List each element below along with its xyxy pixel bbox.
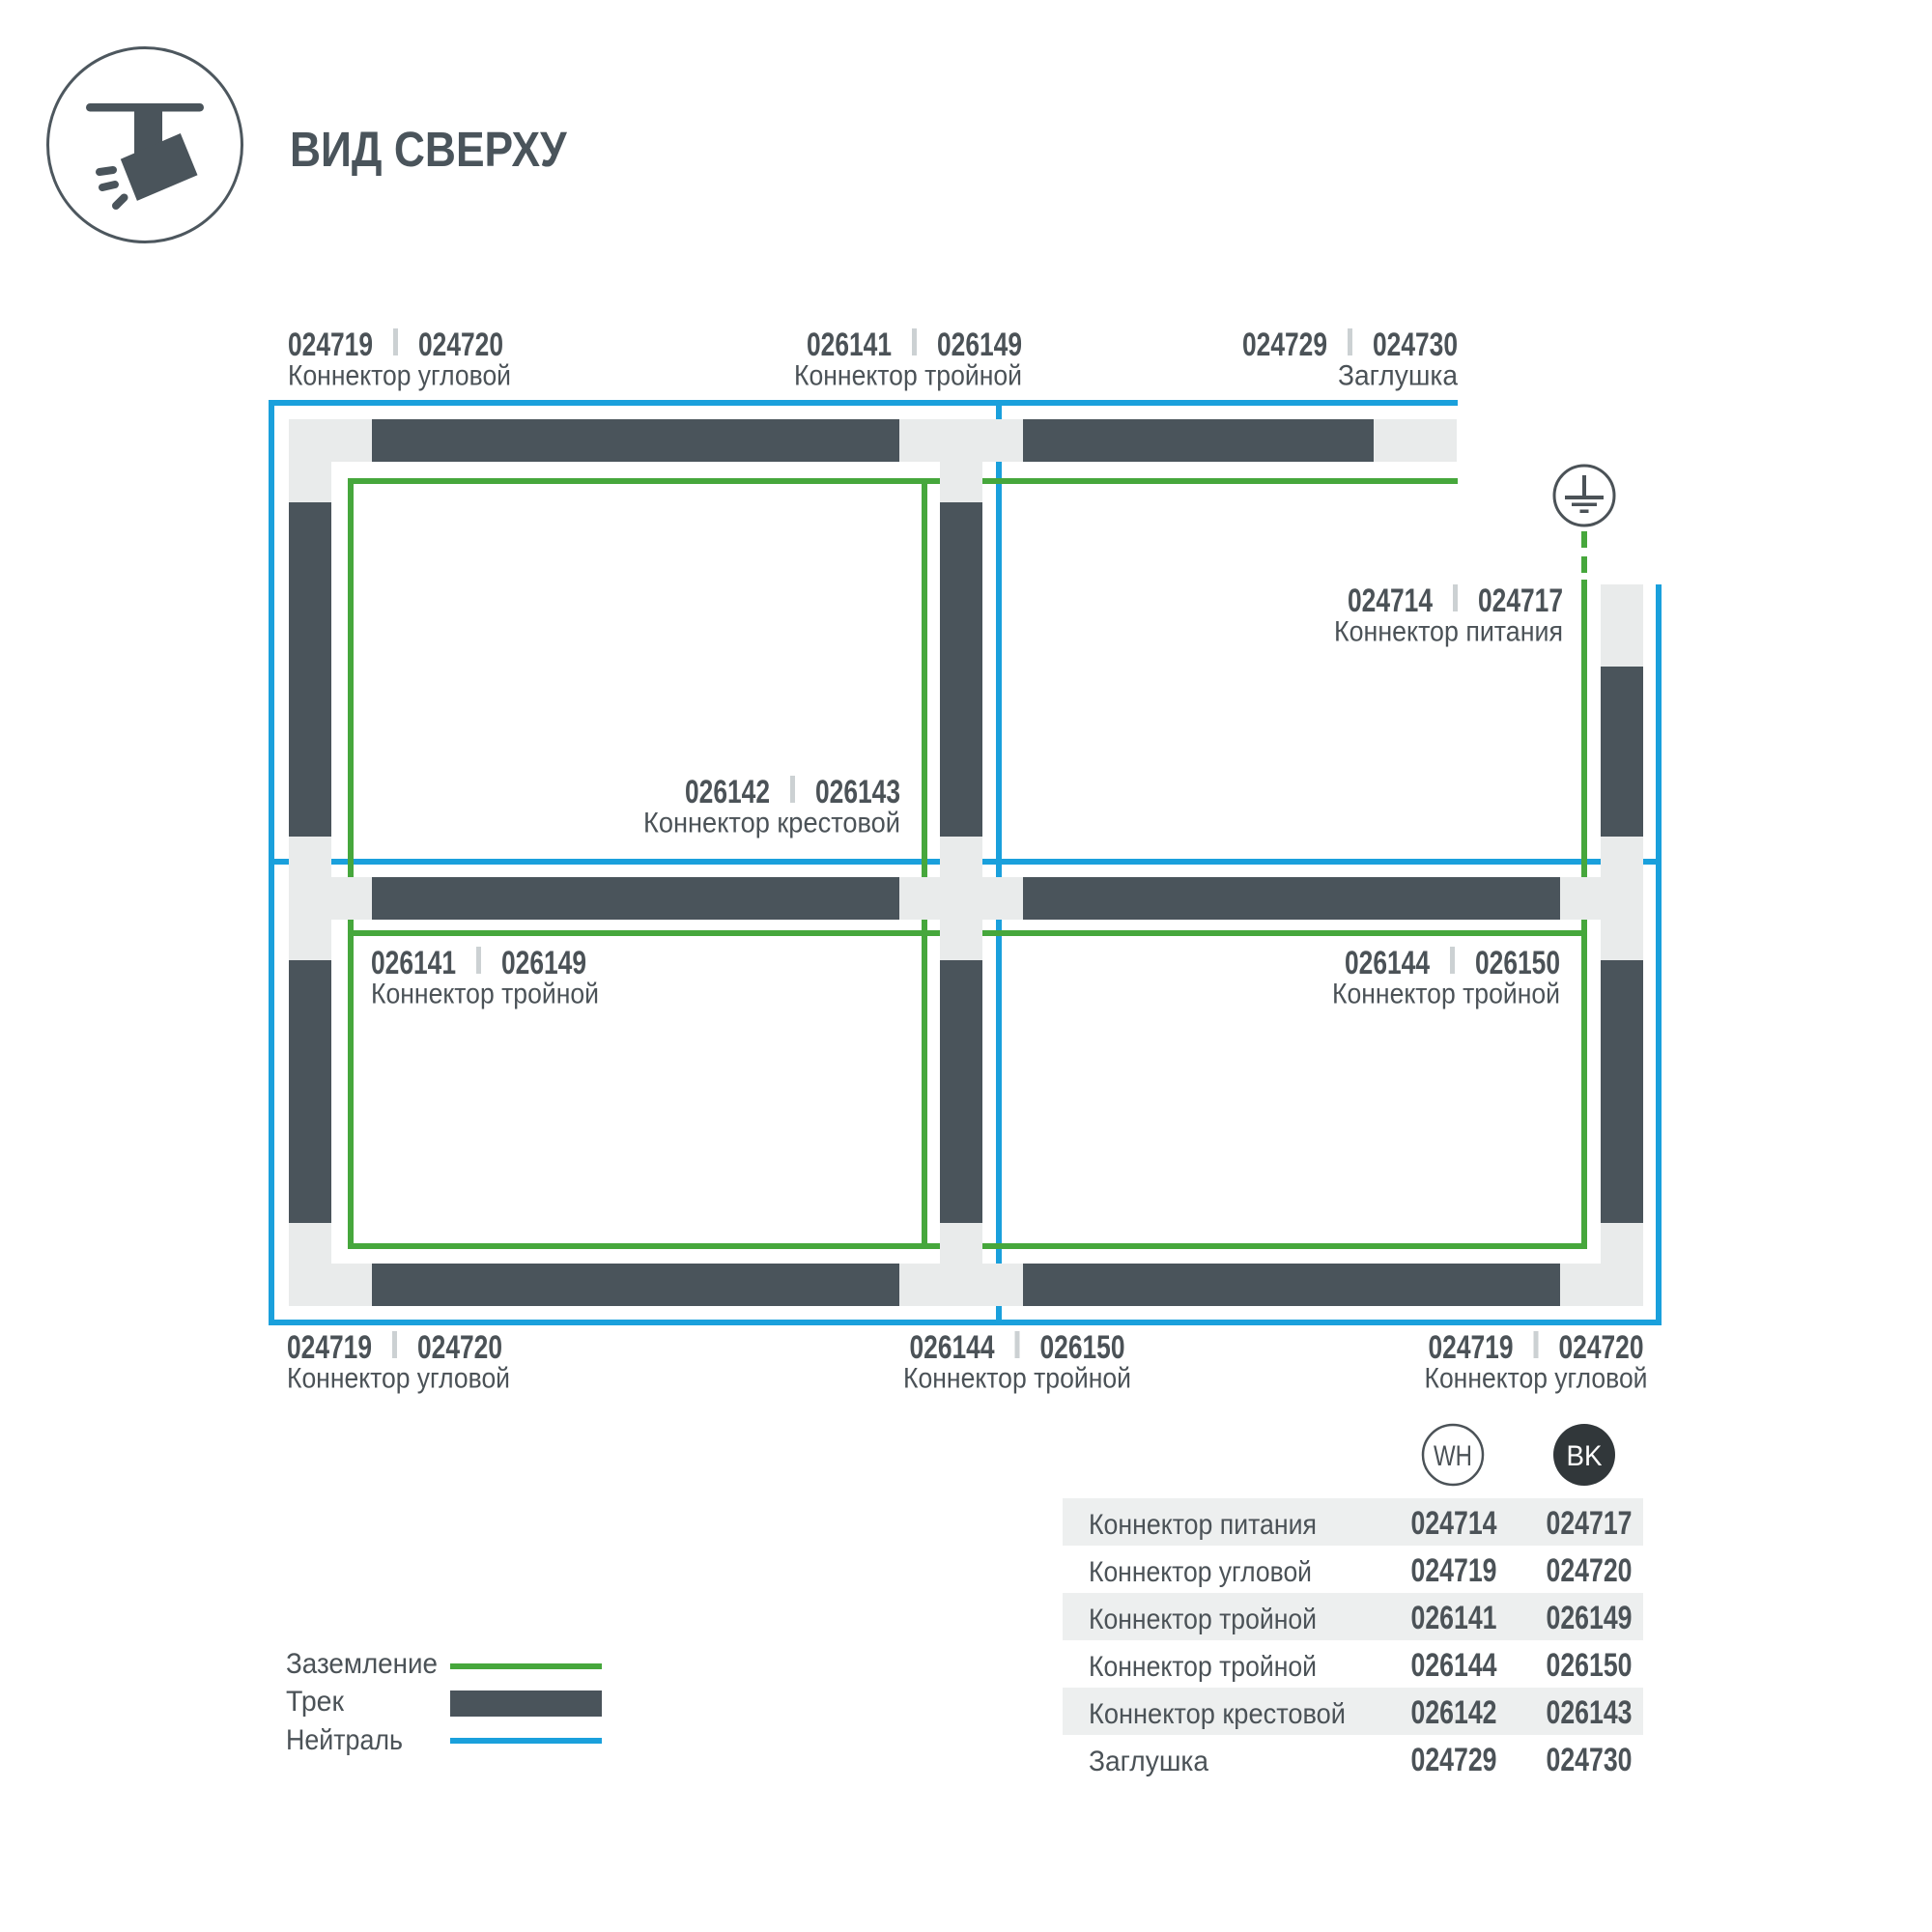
svg-text:024730: 024730 (1373, 327, 1458, 363)
svg-text:026141: 026141 (371, 945, 456, 981)
svg-text:026143: 026143 (1547, 1694, 1633, 1731)
svg-text:024717: 024717 (1547, 1505, 1633, 1542)
svg-text:026150: 026150 (1547, 1647, 1633, 1684)
svg-text:WH: WH (1434, 1440, 1472, 1472)
svg-text:024714: 024714 (1411, 1505, 1497, 1542)
svg-text:024717: 024717 (1478, 582, 1563, 619)
svg-text:024719: 024719 (288, 327, 373, 363)
svg-text:Заземление: Заземление (286, 1648, 438, 1680)
svg-text:Коннектор тройной: Коннектор тройной (903, 1363, 1131, 1395)
svg-text:024719: 024719 (1411, 1552, 1497, 1589)
svg-text:Коннектор тройной: Коннектор тройной (1089, 1604, 1317, 1635)
svg-text:Коннектор крестовой: Коннектор крестовой (643, 808, 900, 839)
svg-text:026150: 026150 (1475, 945, 1560, 981)
svg-text:026144: 026144 (910, 1329, 995, 1366)
svg-text:026142: 026142 (1411, 1694, 1497, 1731)
svg-text:026143: 026143 (815, 774, 900, 810)
svg-text:024719: 024719 (1429, 1329, 1514, 1366)
svg-text:Заглушка: Заглушка (1338, 360, 1458, 392)
svg-text:024720: 024720 (418, 327, 503, 363)
svg-text:Коннектор угловой: Коннектор угловой (1425, 1363, 1648, 1395)
svg-text:026144: 026144 (1411, 1647, 1497, 1684)
svg-text:026149: 026149 (501, 945, 586, 981)
svg-text:Коннектор угловой: Коннектор угловой (288, 360, 511, 392)
svg-text:026150: 026150 (1040, 1329, 1125, 1366)
svg-text:024720: 024720 (1559, 1329, 1644, 1366)
svg-text:026144: 026144 (1345, 945, 1430, 981)
svg-text:Коннектор питания: Коннектор питания (1334, 616, 1563, 648)
svg-text:Трек: Трек (286, 1686, 345, 1718)
svg-text:024719: 024719 (287, 1329, 372, 1366)
svg-text:026149: 026149 (1547, 1600, 1633, 1636)
svg-text:Заглушка: Заглушка (1089, 1746, 1208, 1777)
svg-text:Коннектор угловой: Коннектор угловой (287, 1363, 510, 1395)
svg-text:026141: 026141 (807, 327, 892, 363)
svg-text:024729: 024729 (1242, 327, 1327, 363)
svg-text:Коннектор угловой: Коннектор угловой (1089, 1556, 1312, 1588)
svg-text:024720: 024720 (417, 1329, 502, 1366)
svg-text:026142: 026142 (685, 774, 770, 810)
svg-text:024730: 024730 (1547, 1742, 1633, 1778)
svg-text:Коннектор тройной: Коннектор тройной (371, 979, 599, 1010)
svg-text:026149: 026149 (937, 327, 1022, 363)
svg-text:Коннектор питания: Коннектор питания (1089, 1509, 1317, 1541)
svg-text:BK: BK (1567, 1440, 1603, 1472)
svg-text:026141: 026141 (1411, 1600, 1497, 1636)
svg-text:Коннектор тройной: Коннектор тройной (794, 360, 1022, 392)
svg-text:Нейтраль: Нейтраль (286, 1724, 403, 1756)
svg-text:024720: 024720 (1547, 1552, 1633, 1589)
svg-text:Коннектор крестовой: Коннектор крестовой (1089, 1698, 1346, 1730)
svg-text:024714: 024714 (1348, 582, 1433, 619)
svg-text:024729: 024729 (1411, 1742, 1497, 1778)
svg-text:Коннектор тройной: Коннектор тройной (1089, 1651, 1317, 1683)
svg-text:Коннектор тройной: Коннектор тройной (1332, 979, 1560, 1010)
